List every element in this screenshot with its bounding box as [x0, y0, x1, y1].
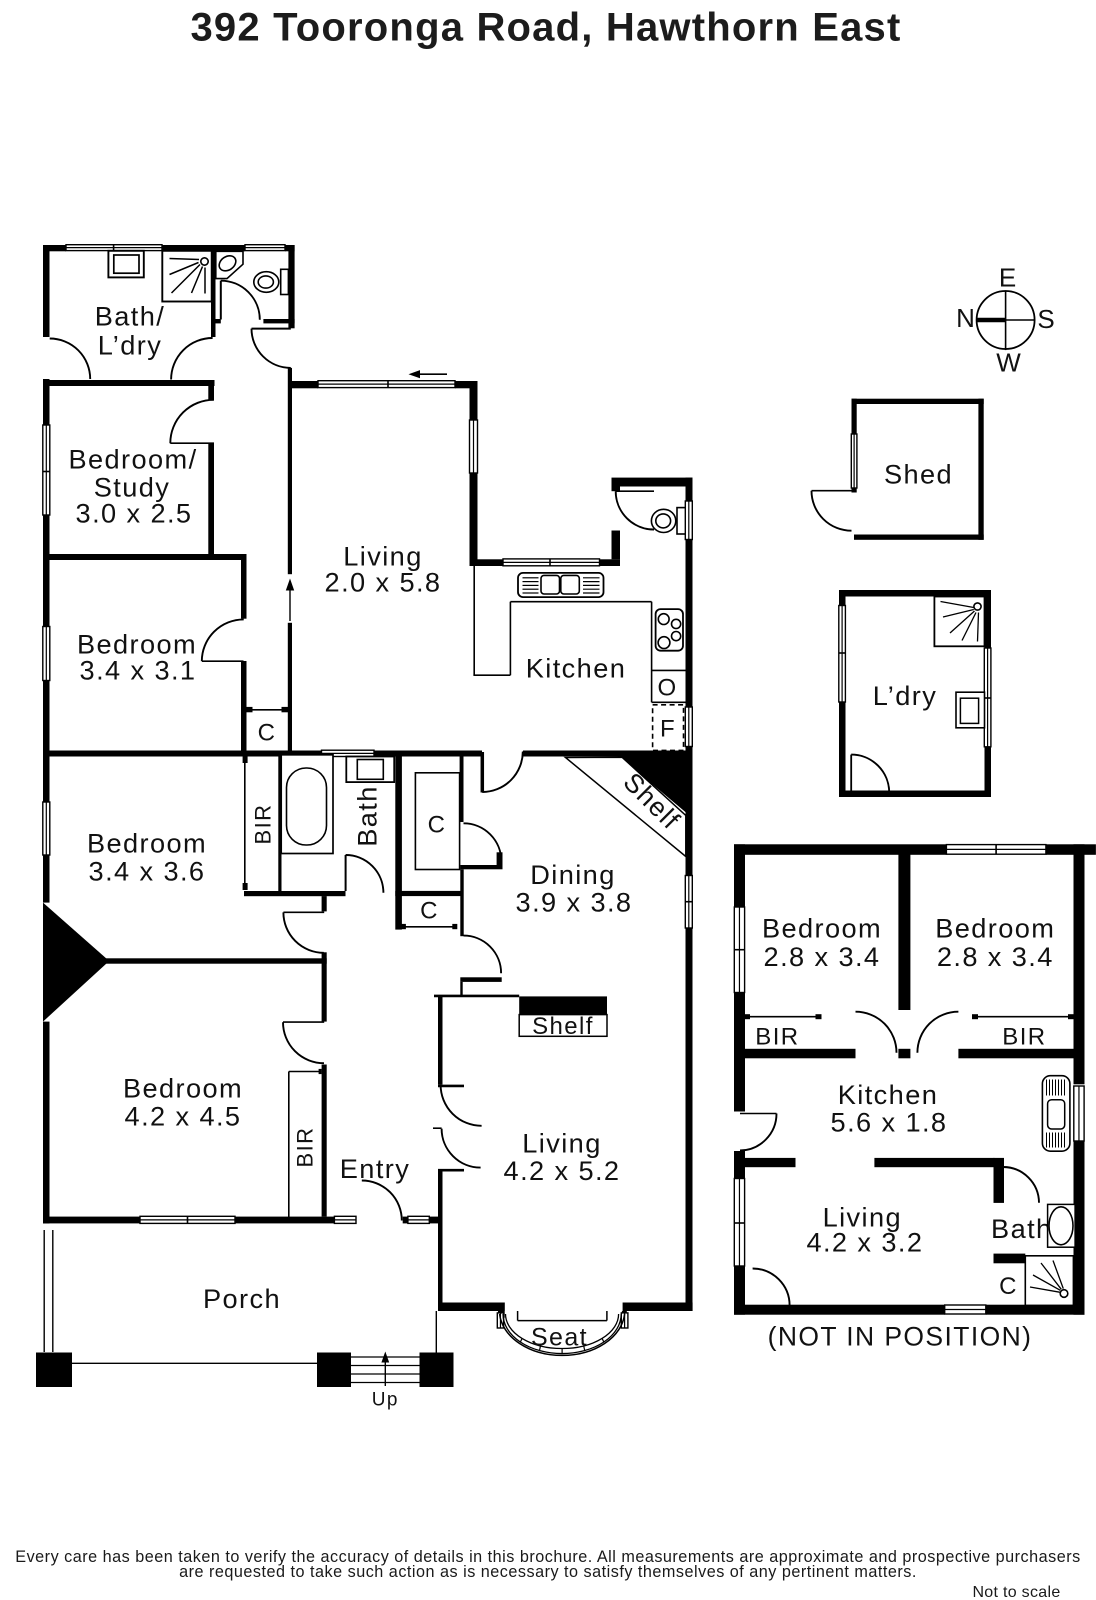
svg-text:F: F: [660, 715, 676, 742]
svg-text:L’dry: L’dry: [98, 329, 162, 360]
svg-text:L’dry: L’dry: [873, 680, 937, 711]
svg-text:5.6 x 1.8: 5.6 x 1.8: [831, 1106, 948, 1137]
svg-text:Kitchen: Kitchen: [838, 1079, 938, 1110]
svg-text:3.4 x 3.6: 3.4 x 3.6: [89, 855, 206, 886]
svg-text:Bedroom: Bedroom: [935, 913, 1055, 944]
svg-text:Seat: Seat: [531, 1324, 588, 1352]
svg-text:C: C: [428, 811, 447, 838]
svg-text:Bedroom: Bedroom: [87, 827, 207, 858]
svg-text:W: W: [996, 347, 1021, 377]
svg-text:C: C: [420, 897, 439, 924]
svg-text:Bedroom: Bedroom: [123, 1072, 243, 1103]
svg-text:4.2 x 5.2: 4.2 x 5.2: [504, 1155, 621, 1186]
svg-text:Not to scale: Not to scale: [972, 1584, 1060, 1600]
svg-text:Dining: Dining: [530, 859, 615, 890]
svg-text:Bath: Bath: [351, 785, 382, 847]
svg-text:4.2 x 3.2: 4.2 x 3.2: [806, 1226, 923, 1257]
svg-text:Shed: Shed: [884, 459, 953, 490]
svg-text:C: C: [999, 1273, 1018, 1300]
svg-text:Entry: Entry: [340, 1153, 410, 1184]
svg-text:BIR: BIR: [293, 1127, 318, 1168]
svg-text:3.4 x 3.1: 3.4 x 3.1: [80, 654, 197, 685]
svg-text:S: S: [1037, 304, 1054, 334]
svg-text:Kitchen: Kitchen: [526, 652, 626, 683]
svg-text:BIR: BIR: [755, 1024, 799, 1051]
svg-text:Bedroom/: Bedroom/: [68, 443, 197, 474]
svg-text:C: C: [258, 719, 277, 746]
svg-text:392 Tooronga Road, Hawthorn Ea: 392 Tooronga Road, Hawthorn East: [190, 5, 901, 49]
svg-text:Bath: Bath: [991, 1213, 1053, 1244]
svg-text:2.8 x 3.4: 2.8 x 3.4: [937, 941, 1054, 972]
svg-text:Shelf: Shelf: [532, 1013, 594, 1040]
svg-text:(NOT IN POSITION): (NOT IN POSITION): [768, 1322, 1033, 1352]
svg-text:N: N: [956, 303, 975, 333]
svg-text:Porch: Porch: [203, 1283, 281, 1314]
svg-text:Living: Living: [522, 1127, 601, 1158]
svg-text:3.0 x 2.5: 3.0 x 2.5: [76, 497, 193, 528]
svg-text:BIR: BIR: [251, 804, 276, 845]
svg-text:O: O: [657, 674, 677, 701]
svg-text:2.8 x 3.4: 2.8 x 3.4: [764, 941, 881, 972]
svg-text:Up: Up: [372, 1390, 399, 1411]
svg-text:E: E: [999, 262, 1016, 292]
svg-text:Bedroom: Bedroom: [762, 913, 882, 944]
svg-text:Bath/: Bath/: [95, 300, 165, 331]
svg-text:BIR: BIR: [1002, 1024, 1046, 1051]
svg-text:4.2 x 4.5: 4.2 x 4.5: [125, 1100, 242, 1131]
svg-text:are requested to take such act: are requested to take such action as is …: [179, 1563, 917, 1581]
svg-text:2.0 x 5.8: 2.0 x 5.8: [325, 566, 442, 597]
svg-text:3.9 x 3.8: 3.9 x 3.8: [516, 886, 633, 917]
